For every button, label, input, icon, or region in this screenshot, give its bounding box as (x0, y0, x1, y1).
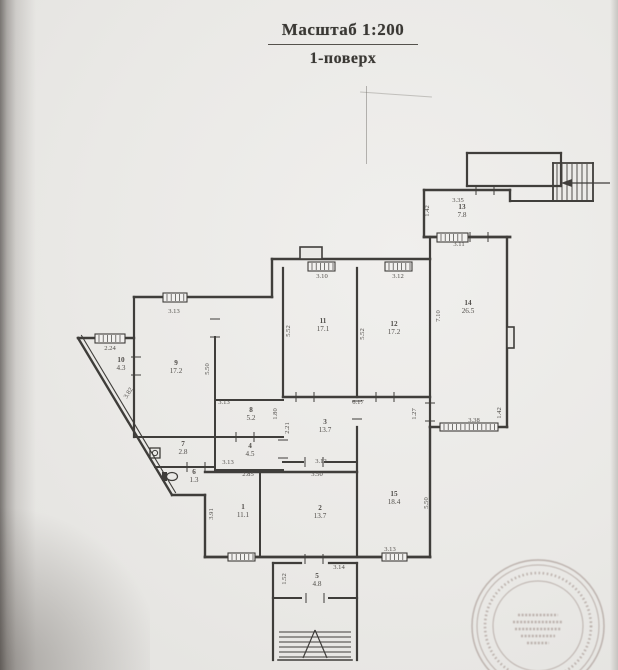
room-number: 14 (464, 299, 472, 307)
dimension-label: 1.27 (411, 408, 418, 420)
dimension-label: 6.17 (352, 399, 364, 406)
dimension-label: 3.38 (468, 417, 480, 424)
sink-icon (152, 450, 157, 455)
room-number: 9 (174, 359, 178, 367)
scan-crease-vertical (366, 86, 367, 164)
dimension-label: 3.13 (218, 399, 230, 406)
entrance-arrow-head (561, 179, 572, 187)
room-number: 2 (318, 504, 322, 512)
dimension-label: 3.35 (452, 197, 464, 204)
room-number: 3 (323, 418, 327, 426)
floor-plan: 137.81426.51117.11217.2917.2104.385.2313… (0, 0, 618, 670)
stamp-ring (493, 581, 583, 670)
wall-jog (507, 327, 514, 348)
room-area: 11.1 (237, 511, 250, 519)
dimension-label: 1.80 (272, 408, 279, 420)
dimension-label: 3.14 (333, 564, 345, 571)
dimension-label: 3.13 (384, 546, 396, 553)
dimension-label: 5.50 (204, 363, 211, 375)
room-area: 7.8 (458, 211, 467, 219)
room-number: 13 (458, 203, 466, 211)
dimension-label: 3.12 (315, 458, 327, 465)
room-area: 4.3 (117, 364, 126, 372)
dimension-label: 3.13 (168, 308, 180, 315)
room-number: 12 (390, 320, 398, 328)
dimension-label: 5.52 (359, 328, 366, 340)
dimension-label: 1.42 (424, 205, 431, 217)
room-number: 4 (248, 442, 252, 450)
room-area: 1.3 (190, 476, 199, 484)
room-number: 6 (192, 468, 196, 476)
plan-layer: 137.81426.51117.11217.2917.2104.385.2313… (78, 153, 610, 660)
scanned-floorplan-page: Масштаб 1:200 1-поверх 137.81426.51117.1… (0, 0, 618, 670)
room-area: 13.7 (319, 426, 332, 434)
stair-up-arrow (315, 630, 327, 658)
dimension-label: 3.91 (208, 508, 215, 520)
window (95, 334, 125, 343)
wall (82, 336, 176, 493)
dimension-label: 3.11 (453, 241, 464, 248)
room-number: 1 (241, 503, 245, 511)
room-number: 5 (315, 572, 319, 580)
dimension-label: 3.10 (316, 273, 328, 280)
room-area: 18.4 (388, 498, 401, 506)
room-area: 13.7 (314, 512, 327, 520)
room-area: 4.8 (313, 580, 322, 588)
stair-up-arrow (303, 630, 315, 658)
room-area: 17.2 (388, 328, 401, 336)
toilet-icon (167, 473, 178, 481)
room-area: 2.8 (179, 448, 188, 456)
room-number: 8 (249, 406, 253, 414)
round-stamp (472, 560, 604, 670)
room-area: 4.5 (246, 450, 255, 458)
dimension-label: 3.12 (392, 273, 404, 280)
room-area: 17.2 (170, 367, 183, 375)
dimension-label: 1.52 (281, 573, 288, 585)
dimension-label: 2.85 (242, 471, 254, 478)
dimension-label: 2.24 (104, 345, 116, 352)
dimension-label: 3.50 (311, 471, 323, 478)
room-number: 11 (320, 317, 327, 325)
room-area: 5.2 (247, 414, 256, 422)
floor-plan-svg: 137.81426.51117.11217.2917.2104.385.2313… (0, 0, 618, 670)
dimension-label: 5.52 (285, 325, 292, 337)
room-number: 7 (181, 440, 185, 448)
room-number: 15 (390, 490, 398, 498)
dimension-label: 1.42 (496, 407, 503, 419)
room-number: 10 (117, 356, 125, 364)
room-area: 26.5 (462, 307, 475, 315)
dimension-label: 2.21 (284, 422, 291, 434)
wall-jog (300, 247, 322, 259)
window (163, 293, 187, 302)
dimension-label: 7.10 (435, 310, 442, 322)
dimension-label: 5.50 (423, 497, 430, 509)
wall (78, 338, 172, 495)
dimension-label: 3.13 (222, 459, 234, 466)
stamp-text-ring (485, 573, 591, 670)
room-area: 17.1 (317, 325, 330, 333)
